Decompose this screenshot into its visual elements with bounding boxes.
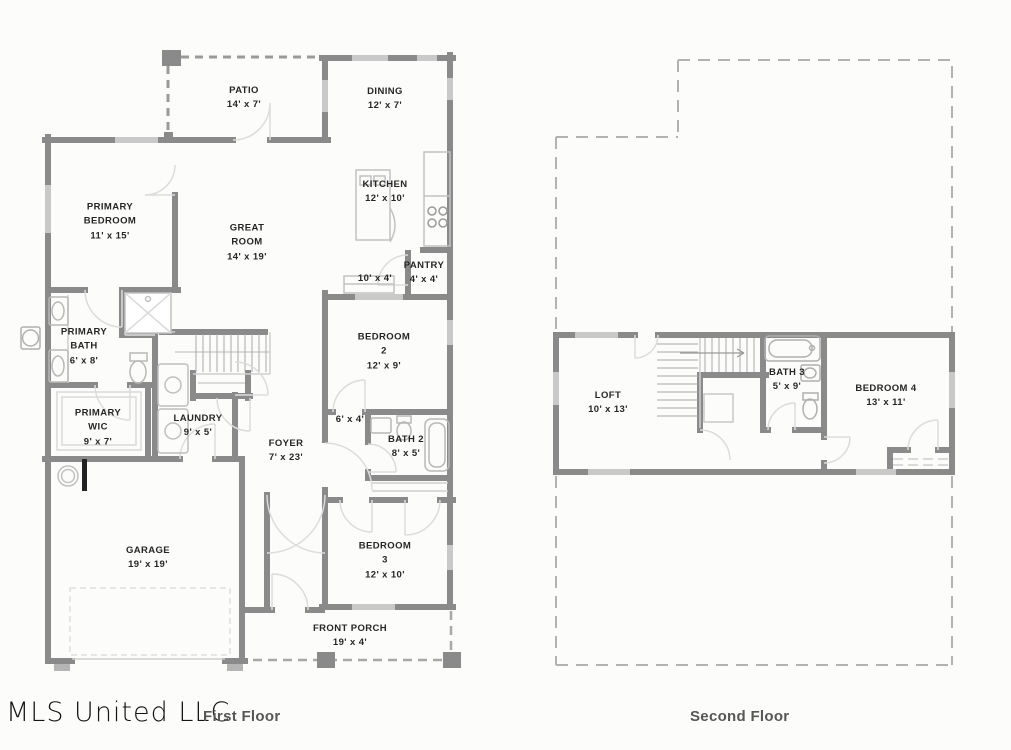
room-label-patio: PATIO14' x 7' <box>227 84 261 113</box>
room-label-great-room: GREAT ROOM14' x 19' <box>227 222 267 265</box>
room-label-kitchen: KITCHEN12' x 10' <box>362 178 407 207</box>
primary-bath-shower <box>125 293 171 333</box>
room-label-bedroom-3: BEDROOM 312' x 10' <box>359 540 411 583</box>
second-floor-caption: Second Floor <box>690 709 789 724</box>
room-label-front-porch: FRONT PORCH19' x 4' <box>313 622 387 651</box>
hall-dims-label: 10' x 4' <box>358 272 392 286</box>
room-label-garage: GARAGE19' x 19' <box>126 544 170 573</box>
room-label-laundry: LAUNDRY9' x 5' <box>174 412 223 441</box>
room-label-loft: LOFT10' x 13' <box>588 389 628 418</box>
room-label-bedroom-2: BEDROOM 212' x 9' <box>358 331 410 374</box>
staircase-second-floor <box>657 338 754 428</box>
room-label-foyer: FOYER7' x 23' <box>269 437 304 466</box>
room-label-bedroom-4: BEDROOM 413' x 11' <box>855 382 916 411</box>
hall2-dims-label: 6' x 4' <box>336 413 364 427</box>
floor-plan-page: PATIO14' x 7' DINING12' x 7' PRIMARY BED… <box>0 0 1011 750</box>
garage-post <box>82 459 87 491</box>
room-label-bath-2: BATH 28' x 5' <box>388 433 424 462</box>
mls-watermark: MLS United LLC <box>6 699 230 726</box>
staircase-first-floor <box>196 334 266 372</box>
second-floor-plan <box>556 60 952 665</box>
bedroom4-closet-shelves <box>893 459 950 465</box>
kitchen-counter-stove <box>424 152 450 246</box>
water-heater <box>58 466 78 486</box>
room-label-pantry: PANTRY4' x 4' <box>404 259 444 288</box>
room-label-primary-bedroom: PRIMARY BEDROOM11' x 15' <box>84 201 136 244</box>
room-label-primary-bath: PRIMARY BATH6' x 8' <box>61 326 107 369</box>
primary-bath-toilet <box>130 353 147 383</box>
garage-footings <box>54 664 243 671</box>
first-floor-caption: First Floor <box>203 709 280 724</box>
room-label-primary-wic: PRIMARY WIC9' x 7' <box>75 407 121 450</box>
garage-door-outline <box>70 588 230 655</box>
room-label-dining: DINING12' x 7' <box>367 85 403 114</box>
ac-unit <box>21 327 40 349</box>
patio-post <box>162 50 181 141</box>
room-label-bath-3: BATH 35' x 9' <box>769 366 805 395</box>
floor-plan-drawing <box>0 0 1011 750</box>
